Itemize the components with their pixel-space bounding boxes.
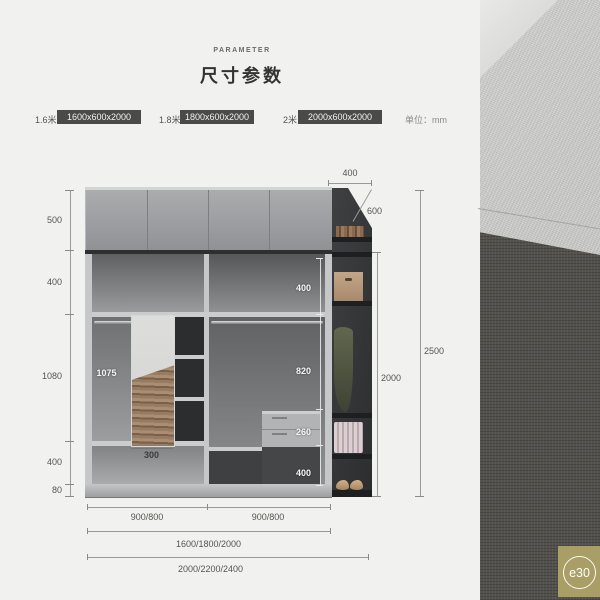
dim-tick [316,314,323,315]
storage-box-decor [334,272,363,301]
door-divider [269,190,270,250]
dim-label-1080: 1080 [26,371,62,381]
shoe-decor [350,480,363,490]
dim-tick [328,180,329,186]
dim-label-500: 500 [26,215,62,225]
dim-tick [368,554,369,560]
cabinet-plinth [85,484,332,498]
size-option-value-1: 1600x600x2000 [57,110,141,124]
bottom-dim-line-1 [87,507,330,508]
dim-label-col-400b: 400 [290,468,317,478]
drawer-handle [272,433,287,435]
dim-label-cabinet-widths: 1600/1800/2000 [148,539,269,549]
dim-label-300: 300 [136,450,167,460]
left-top-compartment [92,254,204,312]
dim-label-80: 80 [26,485,62,495]
box-handle-hole [345,278,352,281]
dim-tick [372,496,381,497]
watermark-badge: e30 [558,546,600,597]
under-drawer-space [262,447,320,484]
dim-tick [330,504,331,510]
striped-hatbox-decor [334,422,363,453]
side-shelf [332,301,372,306]
depth-dim-line [328,183,371,184]
door-divider [147,190,148,250]
spec-sheet-page: PARAMETER 尺寸参数 1.6米 1600x600x2000 1.8米 1… [0,0,600,600]
dim-label-400b: 400 [26,457,62,467]
dim-tick [87,554,88,560]
dim-tick [372,252,381,253]
product-photo [480,0,600,600]
dim-label-1075: 1075 [88,368,125,378]
cubby-shelf [174,397,204,401]
dim-label-2000: 2000 [381,373,401,383]
dim-tick [207,504,208,510]
side-shelf [332,237,372,242]
size-option-label-1: 1.6米 [35,113,57,126]
size-option-value-3: 2000x600x2000 [298,110,382,124]
dim-tick [330,528,331,534]
dim-tick [65,484,74,485]
side-shelf [332,454,372,459]
header-eyebrow: PARAMETER [0,47,484,54]
mirror-width-line [131,448,173,449]
mirror-floor-reflection [132,365,174,446]
cubby-column [174,317,204,441]
right-bottom-dark-space [209,451,263,484]
watermark-text: e30 [569,566,590,580]
sliding-mirror-panel [131,315,175,447]
dim-label-900-800-right: 900/800 [228,512,308,522]
dim-label-depth-400: 400 [334,168,366,178]
dim-tick [65,441,74,442]
dim-tick [65,190,74,191]
side-shelf-bottom [332,490,372,497]
dim-tick [87,528,88,534]
dim-label-col-260: 260 [290,427,317,437]
dim-label-900-800-left: 900/800 [107,512,187,522]
books-decor [336,226,364,237]
dim-tick [65,250,74,251]
dim-tick [87,504,88,510]
hanging-rod-right [211,321,323,324]
side-shelf [332,413,372,418]
dim-tick [316,485,323,486]
dim-tick [371,180,372,186]
size-option-label-3: 2米 [283,113,297,126]
watermark-circle: e30 [563,556,596,589]
interior-dim-line [320,258,321,486]
hanging-garment-decor [334,327,353,412]
drawer-handle [272,417,287,419]
total-height-dim-line [420,190,421,497]
left-dim-line [70,190,71,497]
dim-tick [65,314,74,315]
inner-height-dim-line [377,252,378,497]
side-shelf [332,252,372,257]
unit-note: 单位：mm [405,113,447,126]
dim-label-total-widths: 2000/2200/2400 [150,564,271,574]
dim-label-400: 400 [26,277,62,287]
bottom-dim-line-3 [87,557,368,558]
dim-tick [316,258,323,259]
dim-label-600: 600 [367,206,382,216]
dim-tick [316,445,323,446]
dim-label-col-820: 820 [290,366,317,376]
bottom-dim-line-2 [87,531,330,532]
page-title: 尺寸参数 [0,62,484,88]
dim-tick [316,409,323,410]
upper-cabinet-doors [85,190,334,250]
size-option-label-2: 1.8米 [159,113,181,126]
dim-tick [65,496,74,497]
dim-label-col-400: 400 [290,283,317,293]
cubby-shelf [174,355,204,359]
dim-tick [415,496,424,497]
dim-label-2500: 2500 [424,346,444,356]
door-divider [208,190,209,250]
dim-tick [415,190,424,191]
shoe-decor [336,480,349,490]
size-option-value-2: 1800x600x2000 [180,110,254,124]
side-open-shelf-unit [332,188,372,497]
